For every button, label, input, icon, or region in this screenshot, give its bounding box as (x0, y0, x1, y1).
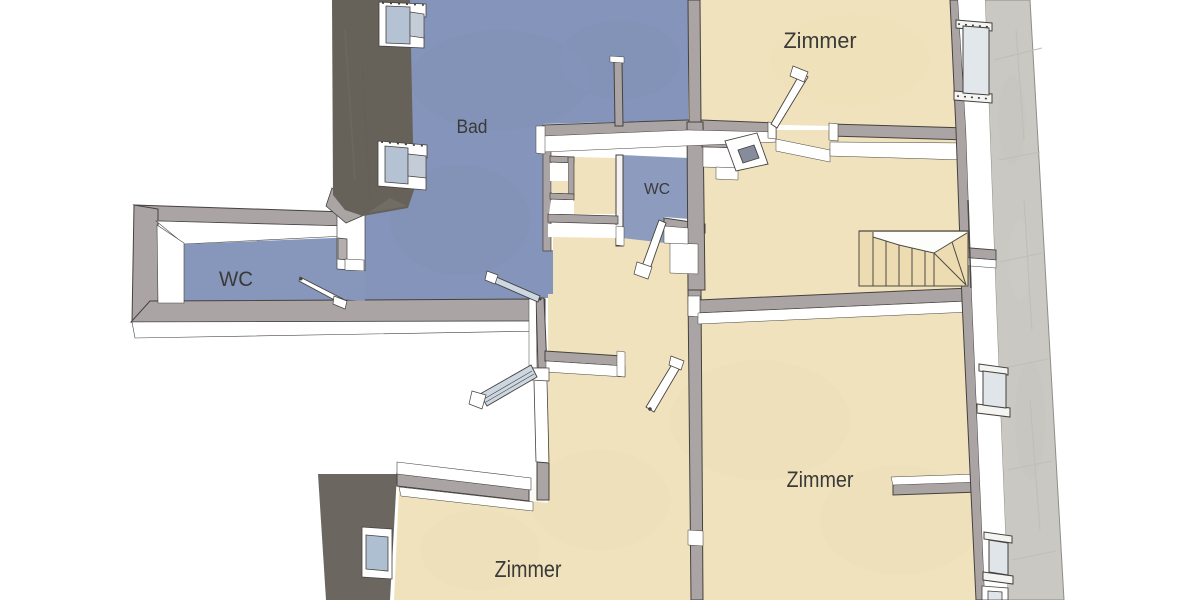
svg-text:Zimmer: Zimmer (495, 556, 562, 582)
svg-text:Zimmer: Zimmer (784, 28, 857, 53)
svg-text:WC: WC (644, 181, 670, 198)
svg-text:Zimmer: Zimmer (787, 467, 854, 492)
svg-text:WC: WC (219, 268, 253, 291)
svg-text:Bad: Bad (457, 117, 488, 138)
